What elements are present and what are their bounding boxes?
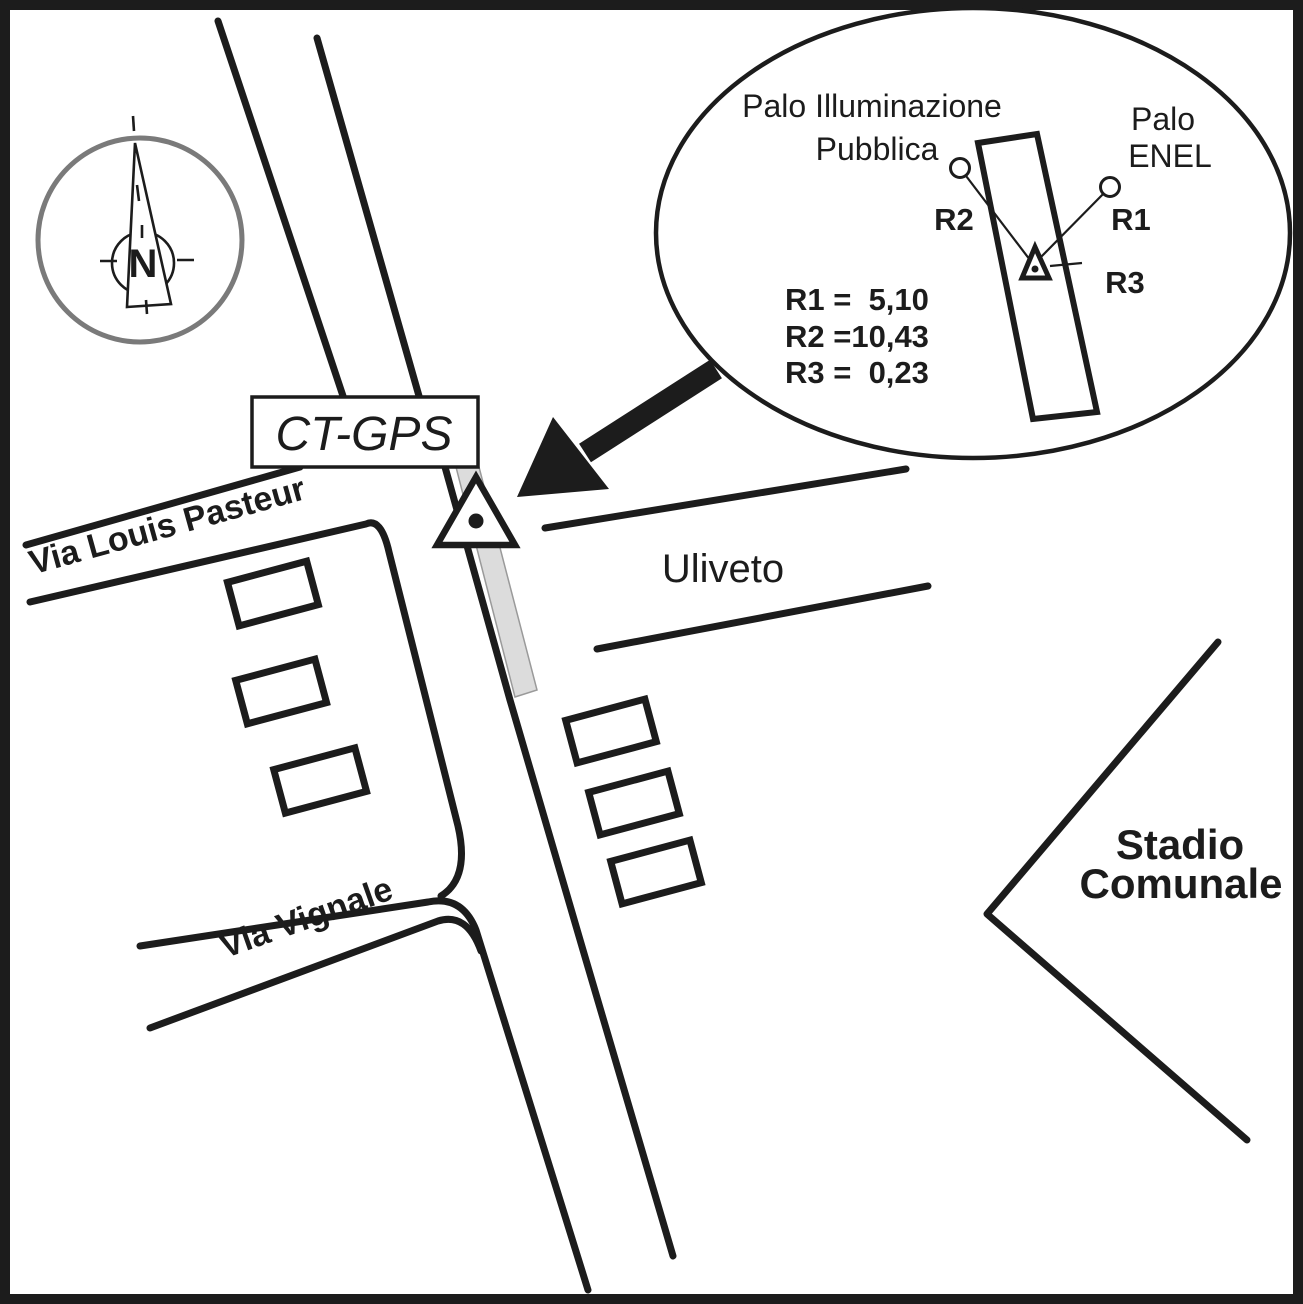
- road-vignale-upper: [140, 901, 588, 1290]
- street-label-vignale: Via Vignale: [215, 870, 398, 966]
- station-name-label: CT-GPS: [276, 408, 453, 461]
- measurement-r3: R3 = 0,23: [785, 355, 929, 390]
- measurement-r1: R1 = 5,10: [785, 282, 929, 317]
- compass-north-label: N: [129, 242, 158, 286]
- building-block: [227, 561, 318, 626]
- building-block: [236, 659, 327, 724]
- station-dot: [469, 514, 484, 529]
- station-name-box: CT-GPS: [252, 397, 478, 467]
- buildings-east: [566, 699, 702, 904]
- r2-label: R2: [934, 202, 974, 237]
- street-label-pasteur: Via Louis Pasteur: [25, 470, 310, 583]
- monography-sheet: N Stadio Comunale Via Louis Pasteur Via …: [0, 0, 1303, 1304]
- inset-station-dot: [1032, 266, 1039, 273]
- light-pole-icon: [951, 159, 970, 178]
- area-label-uliveto: Uliveto: [662, 547, 784, 591]
- pointer-arrow-icon: [517, 369, 716, 497]
- enel-pole-label-line1: Palo: [1131, 101, 1195, 137]
- stadium-label-line2: Comunale: [1079, 860, 1282, 907]
- measurement-r2: R2 =10,43: [785, 319, 929, 354]
- road-main-right-upper: [317, 38, 419, 396]
- compass-rose-icon: N: [38, 116, 242, 342]
- pointer-arrow-shaft: [585, 369, 716, 453]
- light-pole-label-line2: Pubblica: [816, 131, 939, 167]
- detail-inset: Palo Illuminazione Pubblica Palo ENEL R2…: [656, 8, 1290, 458]
- buildings-west: [227, 561, 366, 813]
- building-block: [566, 699, 657, 763]
- building-block: [274, 748, 367, 813]
- building-block: [589, 771, 680, 835]
- map-canvas: N Stadio Comunale Via Louis Pasteur Via …: [0, 0, 1303, 1304]
- r3-label: R3: [1105, 265, 1145, 300]
- road-uliveto-lower: [597, 586, 928, 649]
- r1-label: R1: [1111, 202, 1151, 237]
- enel-pole-icon: [1101, 178, 1120, 197]
- light-pole-label-line1: Palo Illuminazione: [742, 88, 1002, 124]
- building-block: [611, 840, 702, 904]
- enel-pole-label-line2: ENEL: [1128, 138, 1212, 174]
